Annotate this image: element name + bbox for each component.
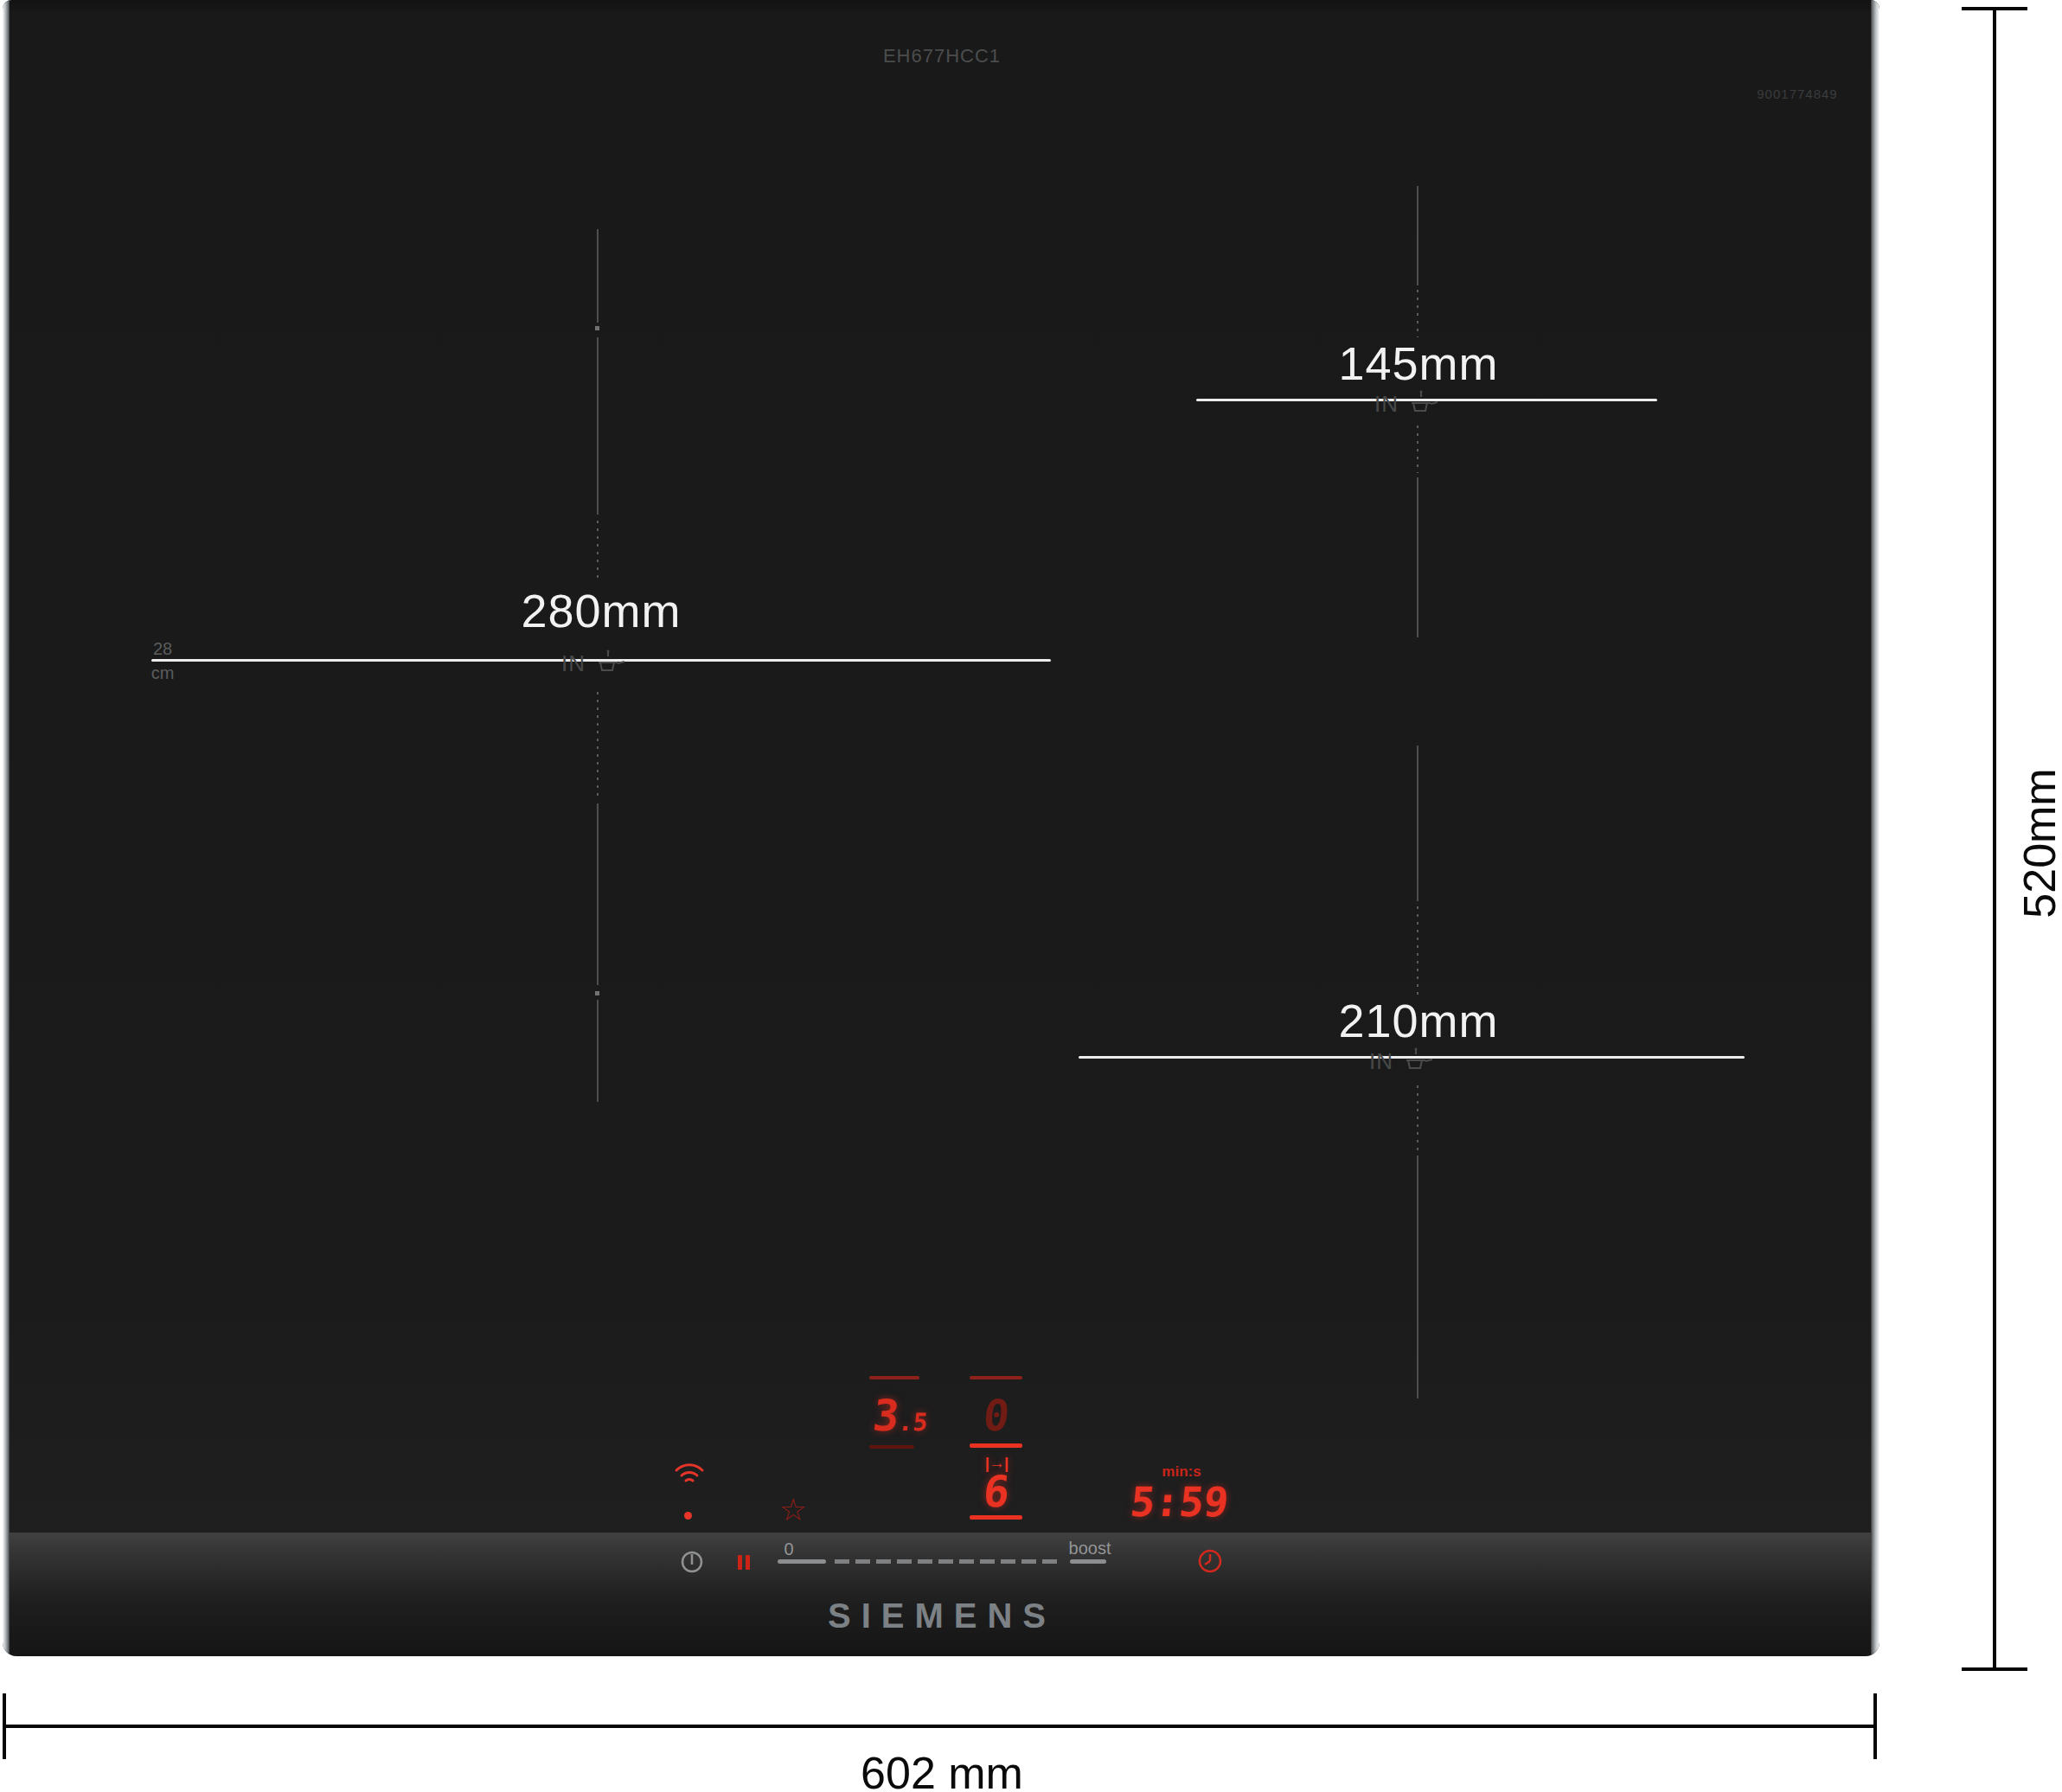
zone-left-size-bottom-label: cm bbox=[141, 664, 184, 682]
display-bottom-bar bbox=[869, 1445, 914, 1449]
zone-left-marking-line bbox=[597, 337, 599, 515]
zone-left-size-top-label: 28 bbox=[141, 640, 184, 657]
zone-left-marking-line bbox=[597, 803, 599, 985]
power-icon[interactable] bbox=[678, 1547, 706, 1575]
slider-zero-label: 0 bbox=[776, 1539, 802, 1559]
zone-top-right-marking-line bbox=[1417, 186, 1418, 285]
brand-logo: SIEMENS bbox=[726, 1597, 1158, 1635]
zone-bottom-right-marking-line bbox=[1417, 746, 1418, 901]
pan-detection-icon bbox=[594, 649, 627, 678]
pan-detection-icon bbox=[1407, 389, 1440, 419]
display-bottom-bar bbox=[970, 1515, 1022, 1520]
zone-top-right-marking-dotted bbox=[1417, 426, 1418, 473]
pan-detection-icon bbox=[1402, 1046, 1435, 1076]
width-dimension-line bbox=[3, 1725, 1877, 1728]
boost-label: boost bbox=[1051, 1539, 1129, 1558]
zone-left-marking-dotted bbox=[597, 692, 599, 799]
lower-power-value: 6 bbox=[968, 1470, 1024, 1514]
model-number-text: EH677HCC1 bbox=[855, 45, 1028, 67]
depth-dimension-line bbox=[1993, 7, 1996, 1671]
timer-clock-icon[interactable] bbox=[1195, 1546, 1225, 1576]
timer-value: 5:59 bbox=[1114, 1481, 1244, 1524]
display-top-bar bbox=[869, 1376, 919, 1379]
zone-bottom-right-induction-label: IN bbox=[1369, 1048, 1393, 1075]
width-dimension-right-cap bbox=[1873, 1693, 1877, 1759]
zone-top-right-diameter-label: 145mm bbox=[1246, 339, 1591, 387]
zone-bottom-right-marking-dotted bbox=[1417, 1085, 1418, 1150]
depth-dimension-bottom-cap bbox=[1962, 1667, 2027, 1671]
zone-top-right-marking-dotted bbox=[1417, 290, 1418, 337]
hob-left-edge bbox=[3, 0, 10, 1656]
depth-dimension-label: 520mm bbox=[2014, 714, 2062, 973]
reference-number-text: 9001774849 bbox=[1711, 86, 1879, 101]
hob-surface: EH677HCC1 9001774849 280mm 28 cm IN bbox=[3, 0, 1879, 1656]
depth-dimension-top-cap bbox=[1962, 7, 2027, 10]
width-dimension-label: 602 mm bbox=[769, 1747, 1115, 1792]
zone-top-right-marking-line bbox=[1417, 477, 1418, 637]
display-top-bar bbox=[970, 1376, 1022, 1379]
zone-left-induction-label: IN bbox=[561, 650, 586, 677]
display-bright-bar bbox=[970, 1443, 1022, 1448]
zone-bottom-right-diameter-label: 210mm bbox=[1246, 996, 1591, 1045]
zone-left-marking-line bbox=[597, 229, 599, 323]
zone-left-diameter-label: 280mm bbox=[428, 586, 774, 635]
zone-left-marking-line bbox=[597, 1000, 599, 1102]
zone-bottom-right-marking-dotted bbox=[1417, 906, 1418, 995]
power-level-sub: .5 bbox=[897, 1408, 929, 1437]
wifi-icon bbox=[673, 1460, 706, 1488]
zone-bottom-right-marking-line bbox=[1417, 1155, 1418, 1398]
zone-left-marking-dotted bbox=[597, 521, 599, 578]
upper-power-value: 0 bbox=[968, 1394, 1024, 1437]
favorite-star-icon[interactable]: ☆ bbox=[776, 1494, 810, 1526]
hob-right-edge bbox=[1871, 0, 1879, 1656]
width-dimension-left-cap bbox=[3, 1693, 6, 1759]
power-slider-track[interactable] bbox=[835, 1559, 1061, 1564]
zone-left-marking-dot bbox=[595, 326, 599, 330]
status-dot-icon bbox=[684, 1512, 692, 1520]
zone-top-right-induction-label: IN bbox=[1374, 391, 1399, 418]
power-slider-start[interactable] bbox=[778, 1559, 826, 1564]
power-slider-end[interactable] bbox=[1070, 1559, 1106, 1564]
zone-left-marking-dot bbox=[595, 991, 599, 995]
